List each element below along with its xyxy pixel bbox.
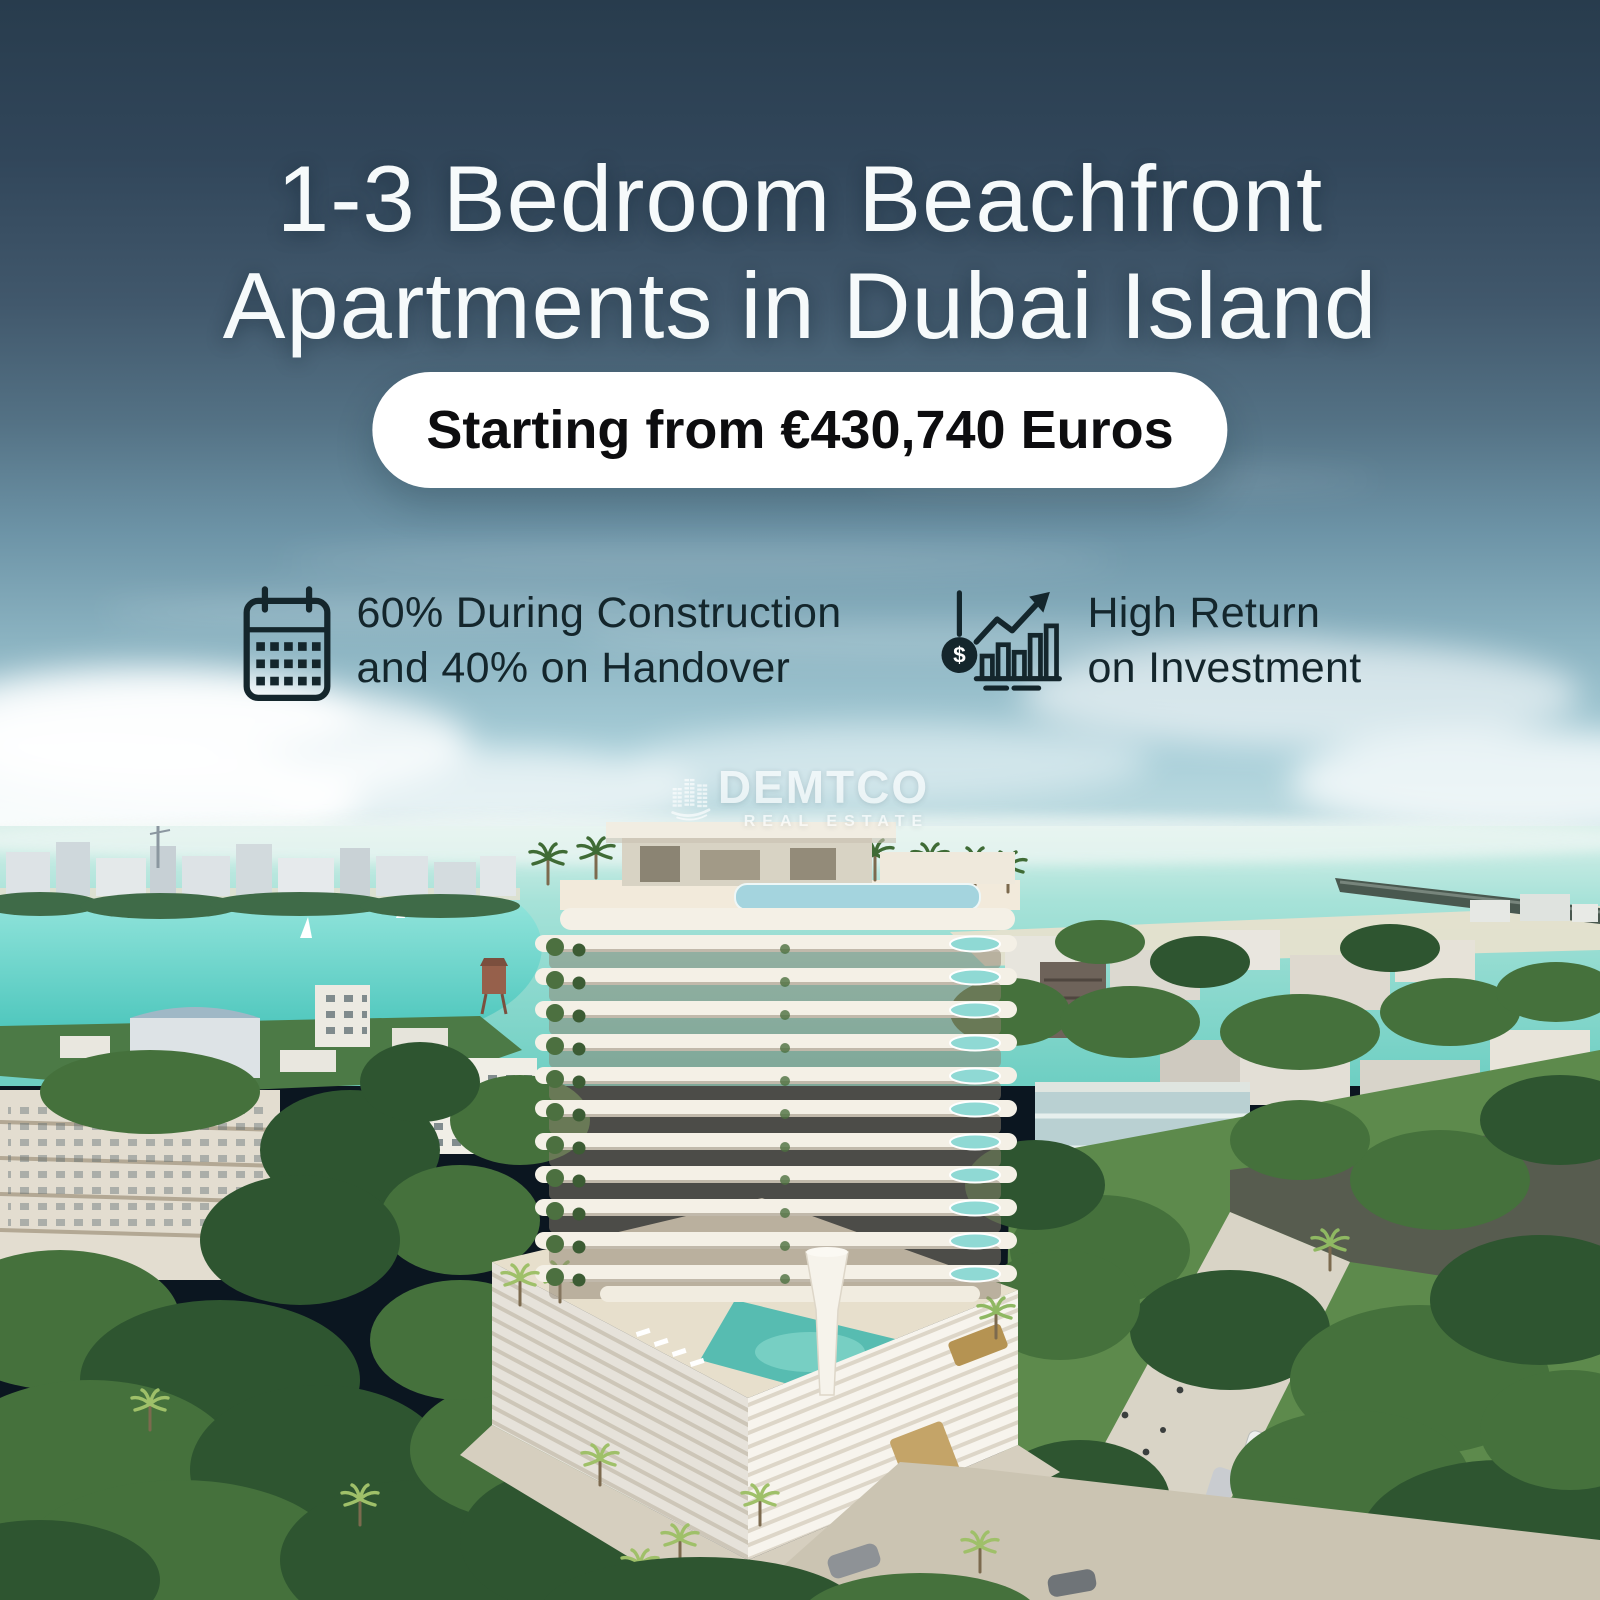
feature-roi-text: High Return on Investment	[1087, 586, 1361, 696]
features-row: 60% During Construction and 40% on Hando…	[0, 586, 1600, 708]
tower-floors	[535, 935, 1017, 1299]
price-badge-label: Starting from €430,740 Euros	[426, 400, 1173, 460]
watermark-tagline: REAL ESTATE	[718, 813, 929, 831]
watermark-brand: DEMTCO	[718, 761, 929, 813]
roi-growth-chart-icon: $	[933, 586, 1065, 694]
feature-payment-plan: 60% During Construction and 40% on Hando…	[239, 586, 842, 708]
watermark-logo: DEMTCO REAL ESTATE	[671, 764, 929, 831]
headline-line-2: Apartments in Dubai Island	[0, 252, 1600, 359]
svg-text:$: $	[954, 643, 967, 668]
price-badge: Starting from €430,740 Euros	[372, 372, 1227, 488]
headline: 1-3 Bedroom Beachfront Apartments in Dub…	[0, 145, 1600, 359]
calendar-icon	[239, 586, 335, 708]
feature-payment-plan-text: 60% During Construction and 40% on Hando…	[357, 586, 842, 696]
real-estate-ad-banner: 1-3 Bedroom Beachfront Apartments in Dub…	[0, 0, 1600, 1600]
buildings-leaf-icon	[671, 773, 711, 823]
watermark-text: DEMTCO REAL ESTATE	[718, 764, 929, 831]
rooftop-infinity-pool	[735, 884, 980, 910]
feature-roi: $ High Return on Investment	[933, 586, 1361, 708]
headline-line-1: 1-3 Bedroom Beachfront	[0, 145, 1600, 252]
